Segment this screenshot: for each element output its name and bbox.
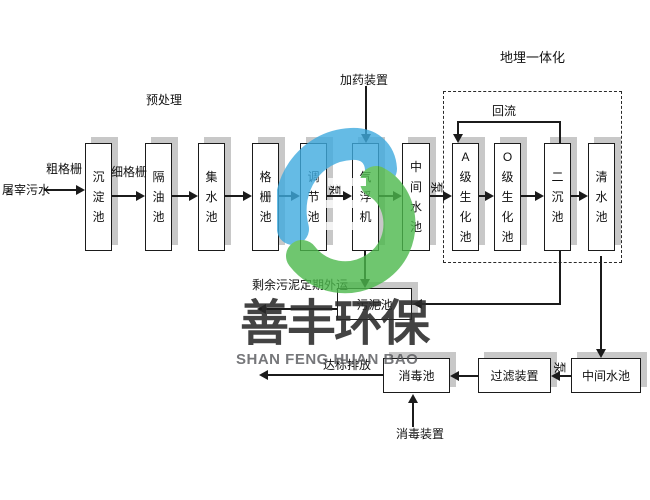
pretreatment-label: 预处理 — [146, 91, 182, 108]
pump-label-2: 泵 — [429, 181, 446, 193]
filter-device-box: 过滤装置 — [478, 358, 551, 393]
arrow-right-icon — [136, 191, 145, 201]
watermark-company-name-en: SHAN FENG HUAN BAO — [236, 351, 418, 368]
sludge-line — [559, 251, 561, 305]
arrow-right-icon — [535, 191, 544, 201]
pump-label-3: 泵 — [552, 361, 569, 373]
arrow-right-icon — [485, 191, 494, 201]
tank-a-biochemical: A级生化池 — [452, 143, 479, 251]
flow-line — [224, 195, 243, 197]
to-intermediate2-line — [600, 256, 602, 349]
fine-grid-label: 细格栅 — [111, 163, 147, 180]
reflux-line — [457, 121, 561, 123]
flow-line — [430, 195, 443, 197]
arrow-right-icon — [579, 191, 588, 201]
arrow-left-icon — [450, 371, 459, 381]
arrow-up-icon — [408, 394, 418, 403]
arrow-right-icon — [189, 191, 198, 201]
tank-clear-water: 清水池 — [588, 143, 615, 251]
tank-secondary-sedimentation: 二沉池 — [544, 143, 571, 251]
process-flow-diagram: 沉淀池 隔油池 集水池 格栅池 调节池 气浮机 中间水池 A级生化池 O级生化池… — [0, 0, 650, 500]
flow-line — [111, 195, 136, 197]
dosing-device-label: 加药装置 — [340, 71, 388, 88]
tank-o-biochemical: O级生化池 — [494, 143, 521, 251]
flow-line — [171, 195, 189, 197]
tank-oil-separation: 隔油池 — [145, 143, 172, 251]
flow-line — [560, 375, 571, 377]
inflow-label: 屠宰污水 — [2, 181, 50, 198]
tank-intermediate-2: 中间水池 — [571, 358, 641, 393]
reflux-label: 回流 — [492, 102, 516, 119]
disinfection-device-line — [412, 403, 414, 427]
arrow-right-icon — [76, 185, 85, 195]
flow-line — [459, 375, 478, 377]
tank-sedimentation: 沉淀池 — [85, 143, 112, 251]
arrow-down-icon — [453, 134, 463, 143]
watermark-company-name: 善丰环保 — [240, 284, 428, 355]
flow-line — [571, 195, 579, 197]
disinfection-device-label: 消毒装置 — [396, 425, 444, 442]
arrow-left-icon — [259, 370, 268, 380]
coarse-grid-label: 粗格栅 — [46, 160, 82, 177]
tank-grid: 格栅池 — [252, 143, 279, 251]
company-logo-icon — [277, 126, 417, 298]
arrow-right-icon — [243, 191, 252, 201]
flow-line — [521, 195, 535, 197]
buried-integration-label: 地埋一体化 — [500, 47, 565, 66]
flow-line — [478, 195, 485, 197]
arrow-down-icon — [596, 349, 606, 358]
sludge-line — [422, 303, 561, 305]
reflux-line — [559, 121, 561, 143]
reflux-line — [457, 121, 459, 134]
tank-collecting: 集水池 — [198, 143, 225, 251]
discharge-line — [268, 374, 383, 376]
